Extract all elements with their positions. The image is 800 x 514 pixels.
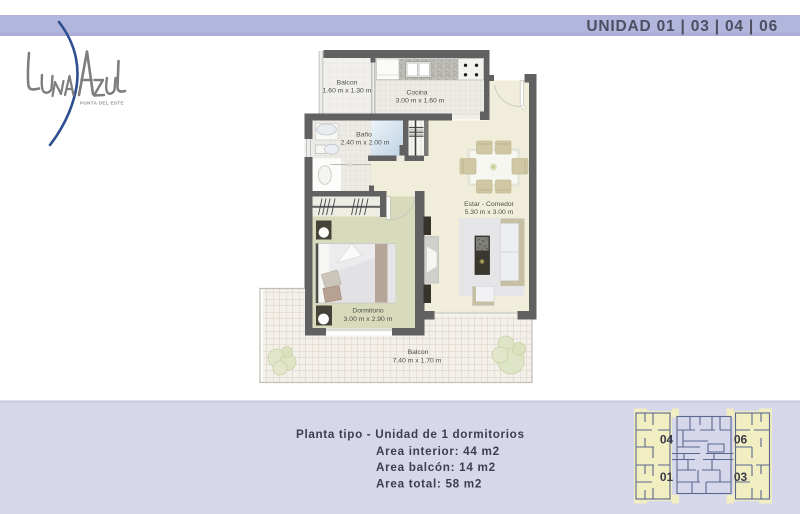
svg-text:3.00 m x 1.60 m: 3.00 m x 1.60 m <box>396 98 445 105</box>
svg-text:3.00 m x 2.90 m: 3.00 m x 2.90 m <box>344 316 393 323</box>
svg-text:Area balcón: 14 m2: Area balcón: 14 m2 <box>376 461 496 474</box>
svg-text:Estar - Comedor: Estar - Comedor <box>464 201 515 208</box>
svg-text:PUNTA DEL ESTE: PUNTA DEL ESTE <box>80 101 124 106</box>
svg-text:Cocina: Cocina <box>406 90 427 97</box>
svg-text:Dormitorio: Dormitorio <box>352 308 384 315</box>
svg-text:UNIDAD 01 | 03 | 04 | 06: UNIDAD 01 | 03 | 04 | 06 <box>586 18 778 35</box>
svg-text:Balcon: Balcon <box>337 80 358 87</box>
svg-text:5.30 m x 3.00 m: 5.30 m x 3.00 m <box>465 209 514 216</box>
svg-text:Planta tipo - Unidad de 1 dorm: Planta tipo - Unidad de 1 dormitorios <box>296 428 525 441</box>
svg-text:01: 01 <box>660 470 674 484</box>
svg-text:1.60 m x 1.30 m: 1.60 m x 1.30 m <box>323 88 372 95</box>
svg-text:7.40 m x 1.70 m: 7.40 m x 1.70 m <box>393 358 442 365</box>
svg-text:Area total: 58 m2: Area total: 58 m2 <box>376 478 482 491</box>
svg-text:04: 04 <box>660 433 674 447</box>
svg-text:03: 03 <box>734 470 748 484</box>
svg-text:06: 06 <box>734 433 748 447</box>
svg-text:2.40 m x 2.00 m: 2.40 m x 2.00 m <box>341 140 390 147</box>
svg-text:Balcon: Balcon <box>408 349 429 356</box>
svg-text:Area interior: 44 m2: Area interior: 44 m2 <box>376 445 500 458</box>
svg-text:Baño: Baño <box>356 132 372 139</box>
